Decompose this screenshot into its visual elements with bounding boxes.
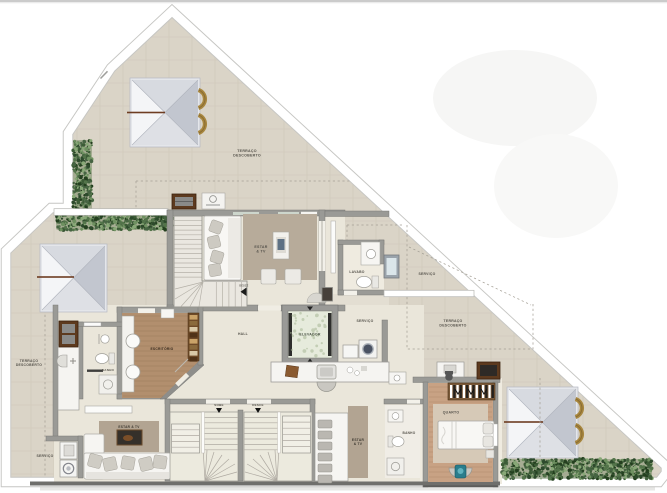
svg-text:LAVABO: LAVABO xyxy=(349,270,364,274)
svg-text:TERRAÇODESCOBERTO: TERRAÇODESCOBERTO xyxy=(439,319,466,327)
svg-text:SERVIÇO: SERVIÇO xyxy=(37,454,54,458)
svg-text:BANHO: BANHO xyxy=(403,431,416,435)
svg-text:QUARTO: QUARTO xyxy=(443,411,460,415)
svg-text:DESCE: DESCE xyxy=(239,286,248,288)
svg-text:TERRAÇODESCOBERTO: TERRAÇODESCOBERTO xyxy=(233,149,261,157)
svg-text:BANHO: BANHO xyxy=(102,368,115,372)
svg-text:SERVIÇO: SERVIÇO xyxy=(357,319,374,323)
svg-text:ELEVADOR: ELEVADOR xyxy=(299,333,320,337)
svg-text:SERVIÇO: SERVIÇO xyxy=(419,272,436,276)
svg-text:HALL: HALL xyxy=(238,332,248,336)
svg-text:ESCRITÓRIO: ESCRITÓRIO xyxy=(150,346,173,351)
svg-text:DESCE: DESCE xyxy=(252,403,264,407)
svg-text:ESTAR & TV: ESTAR & TV xyxy=(118,425,140,429)
svg-text:SOBE: SOBE xyxy=(214,403,224,407)
